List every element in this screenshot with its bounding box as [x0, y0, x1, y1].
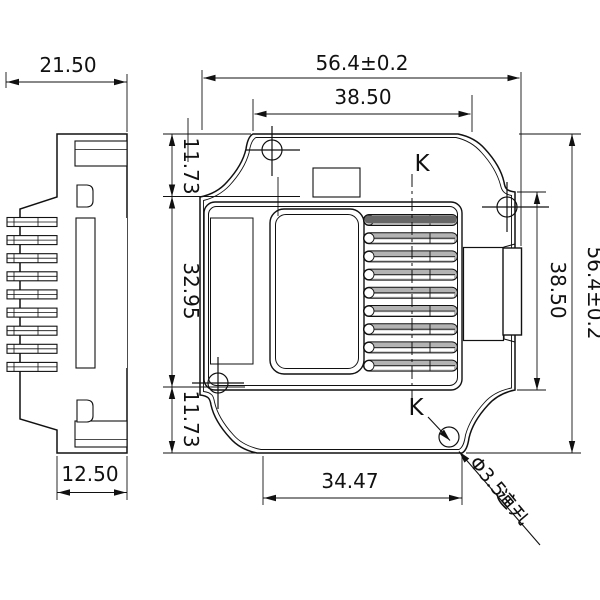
marking-label-rect — [313, 168, 360, 197]
dim-left-middle: 32.95 — [179, 262, 203, 319]
dim-right-overall: 56.4±0.2 — [583, 246, 600, 339]
connector-opening-outer — [270, 209, 364, 374]
dim-left-top: 11.73 — [179, 137, 203, 194]
side-lower-plate — [75, 421, 127, 447]
section-label-bottom: K — [408, 395, 424, 421]
dim-top-upper: 38.50 — [334, 85, 391, 109]
dim-bottom-width: 34.47 — [321, 469, 378, 493]
dim-side-depth: 21.50 — [39, 53, 96, 77]
section-label-top: K — [414, 151, 430, 177]
drawing-canvas: Φ3.5通孔 — [0, 0, 600, 600]
side-upper-tab — [77, 185, 93, 207]
connector-fins — [364, 215, 458, 372]
side-cavity-white — [76, 218, 127, 368]
right-tongue-tab — [503, 248, 522, 335]
side-lower-tab — [77, 400, 93, 422]
fin-dark-shade — [365, 216, 457, 224]
technical-drawing: Φ3.5通孔 — [0, 0, 600, 600]
dim-right-inner: 38.50 — [546, 261, 570, 318]
dim-left-bottom: 11.73 — [179, 390, 203, 447]
dim-top-overall: 56.4±0.2 — [315, 51, 408, 75]
right-tongue-inner — [464, 248, 504, 341]
side-pins — [7, 218, 57, 372]
side-upper-plate — [75, 141, 127, 166]
dim-side-housing: 12.50 — [61, 462, 118, 486]
